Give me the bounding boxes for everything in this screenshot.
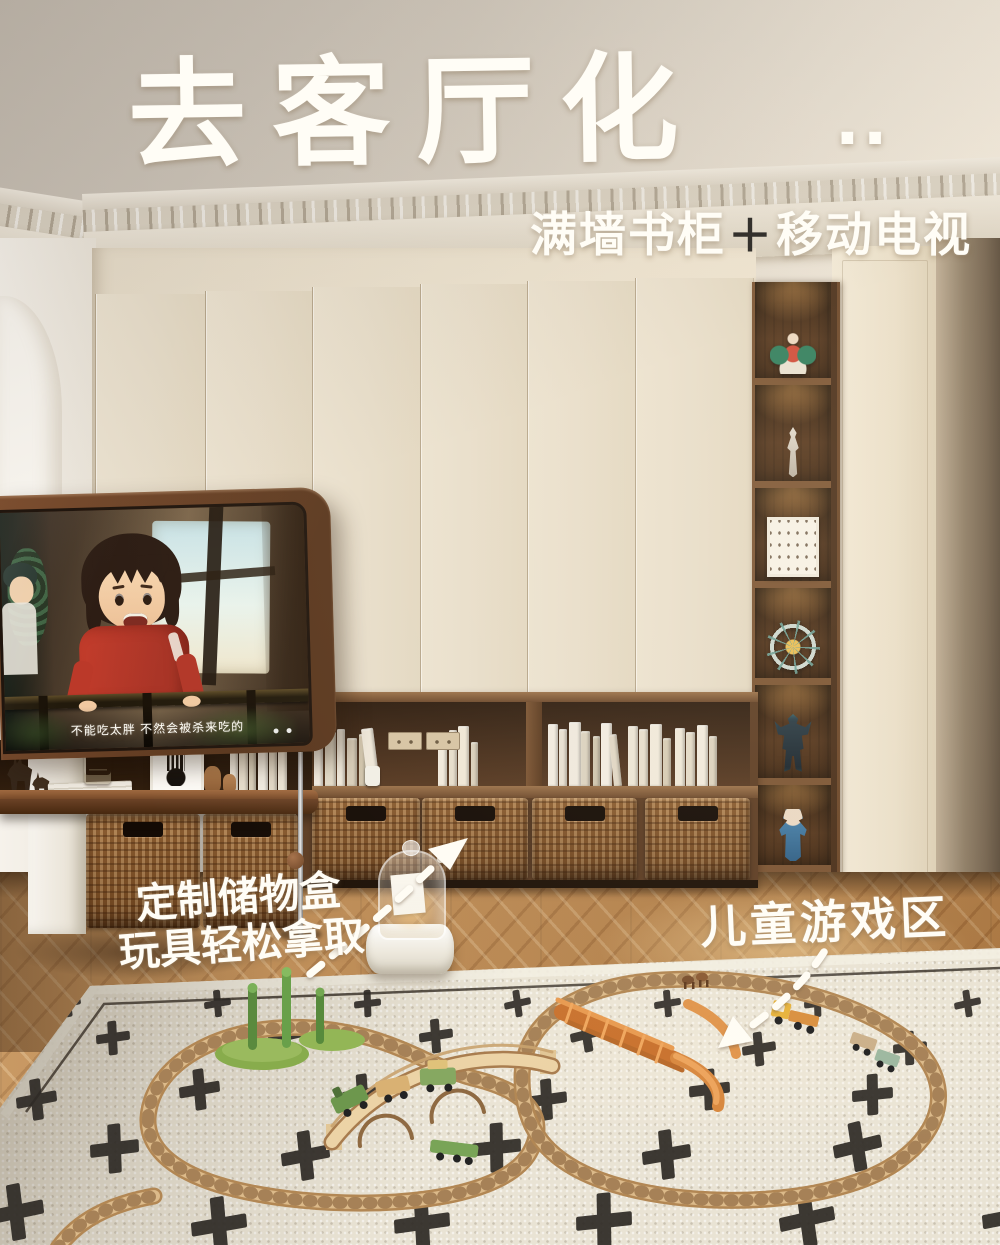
title-dots: ..: [836, 70, 892, 164]
page-title: 去客厅化: [127, 12, 705, 191]
plus-icon: ＋: [726, 212, 776, 261]
subtitle-right: 移动电视: [776, 208, 972, 261]
subtitle-left: 满墙书柜: [530, 208, 726, 261]
interior-photo-post: 不能吃太胖 不然会被杀来吃的: [0, 0, 1000, 1245]
play-area-note: 儿童游戏区: [699, 881, 952, 958]
subtitle: 满墙书柜＋移动电视: [0, 196, 972, 265]
